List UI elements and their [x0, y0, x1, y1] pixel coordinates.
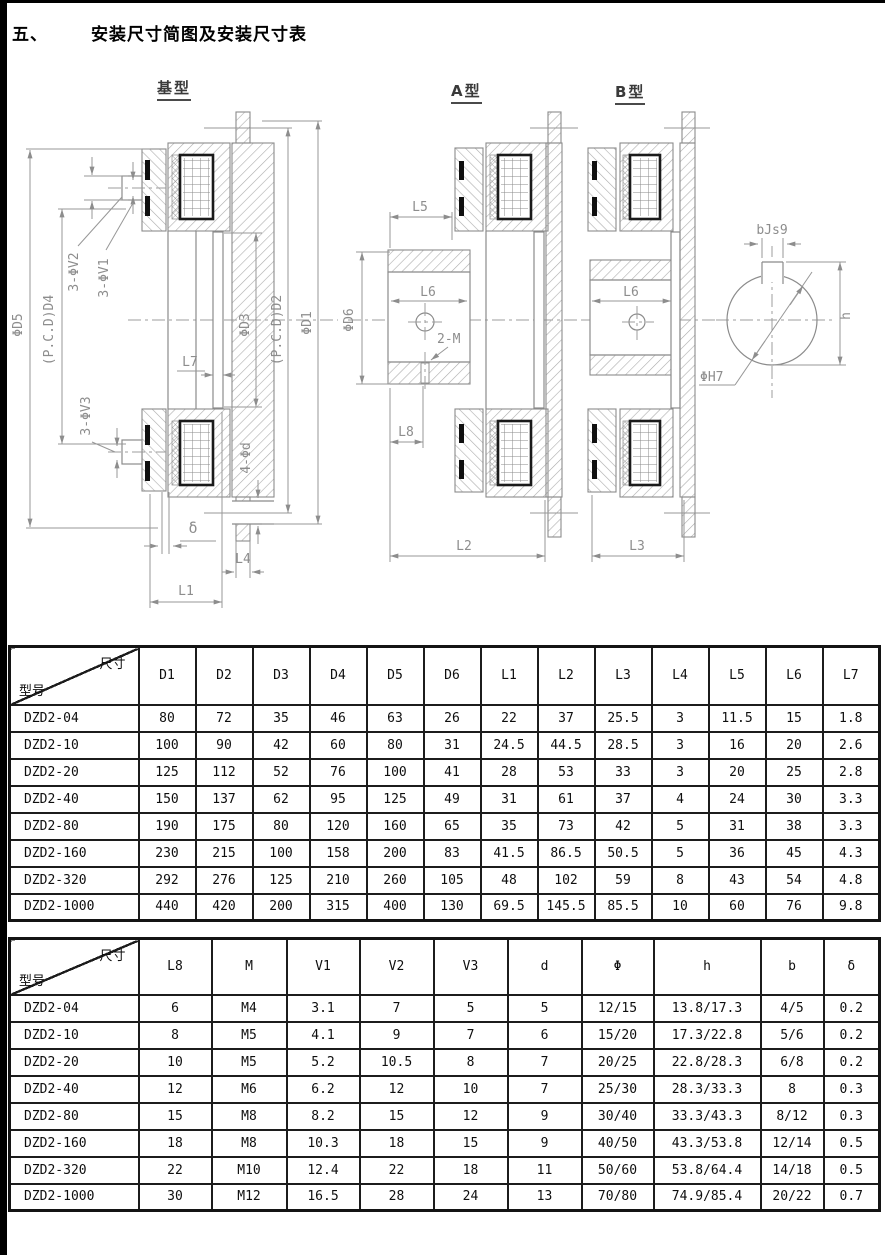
- value-cell: 49: [424, 786, 481, 813]
- value-cell: 12/15: [582, 995, 654, 1022]
- dim-label-l1: L1: [178, 584, 194, 599]
- value-cell: 63: [367, 705, 424, 732]
- model-cell: DZD2-04: [10, 705, 139, 732]
- table-row: DZD2-4012M66.21210725/3028.3/33.380.3: [10, 1076, 880, 1103]
- dim-label-2-m: 2-M: [437, 332, 461, 347]
- value-cell: 43: [709, 867, 766, 894]
- value-cell: 12.4: [287, 1157, 360, 1184]
- value-cell: 105: [424, 867, 481, 894]
- value-cell: 90: [196, 732, 253, 759]
- value-cell: 25/30: [582, 1076, 654, 1103]
- keyway-detail: bJs9 h ΦH7: [699, 223, 854, 398]
- value-cell: 4.8: [823, 867, 880, 894]
- value-cell: 62: [253, 786, 310, 813]
- column-header: L4: [652, 647, 709, 705]
- dim-label-l2: L2: [456, 539, 472, 554]
- value-cell: 100: [139, 732, 196, 759]
- value-cell: 292: [139, 867, 196, 894]
- value-cell: 37: [595, 786, 652, 813]
- table-row: DZD2-1602302151001582008341.586.550.5536…: [10, 840, 880, 867]
- dim-label-phi-d1: ΦD1: [300, 311, 315, 334]
- value-cell: 70/80: [582, 1184, 654, 1211]
- dim-label-pcd-d2: (P.C.D)D2: [270, 295, 285, 365]
- value-cell: 76: [766, 894, 823, 921]
- value-cell: 53: [538, 759, 595, 786]
- header-row: 尺寸 型号 L8 M V1 V2 V3 d Φ h b δ: [10, 939, 880, 995]
- value-cell: 45: [766, 840, 823, 867]
- value-cell: 26: [424, 705, 481, 732]
- dimension-table-1: 尺寸 型号 D1 D2 D3 D4 D5 D6 L1 L2 L3 L4 L5 L…: [8, 645, 881, 922]
- dim-label-l6-b: L6: [623, 285, 639, 300]
- value-cell: 37: [538, 705, 595, 732]
- value-cell: 125: [367, 786, 424, 813]
- value-cell: 41.5: [481, 840, 538, 867]
- model-cell: DZD2-20: [10, 1049, 139, 1076]
- dim-label-l6-a: L6: [420, 285, 436, 300]
- value-cell: 16.5: [287, 1184, 360, 1211]
- value-cell: 18: [139, 1130, 212, 1157]
- value-cell: 145.5: [538, 894, 595, 921]
- value-cell: 54: [766, 867, 823, 894]
- value-cell: 16: [709, 732, 766, 759]
- table-row: DZD2-04807235466326223725.5311.5151.8: [10, 705, 880, 732]
- corner-cell: 尺寸 型号: [10, 939, 139, 995]
- catalog-page: 五、安装尺寸简图及安装尺寸表 基型 A型 B型: [0, 0, 885, 1255]
- value-cell: 30/40: [582, 1103, 654, 1130]
- value-cell: 7: [360, 995, 434, 1022]
- value-cell: 83: [424, 840, 481, 867]
- value-cell: M4: [212, 995, 287, 1022]
- value-cell: 6.2: [287, 1076, 360, 1103]
- value-cell: 125: [253, 867, 310, 894]
- column-header: V2: [360, 939, 434, 995]
- value-cell: 5: [434, 995, 508, 1022]
- value-cell: 15/20: [582, 1022, 654, 1049]
- value-cell: 0.3: [824, 1076, 880, 1103]
- value-cell: 50/60: [582, 1157, 654, 1184]
- value-cell: 1.8: [823, 705, 880, 732]
- value-cell: 7: [508, 1076, 582, 1103]
- value-cell: 30: [766, 786, 823, 813]
- value-cell: 53.8/64.4: [654, 1157, 761, 1184]
- value-cell: 3: [652, 705, 709, 732]
- column-header: D2: [196, 647, 253, 705]
- corner-top-label: 尺寸: [99, 945, 125, 964]
- value-cell: 15: [360, 1103, 434, 1130]
- value-cell: 210: [310, 867, 367, 894]
- model-cell: DZD2-10: [10, 1022, 139, 1049]
- dim-label-phi-d5: ΦD5: [11, 313, 26, 336]
- value-cell: M10: [212, 1157, 287, 1184]
- value-cell: 15: [139, 1103, 212, 1130]
- value-cell: 30: [139, 1184, 212, 1211]
- value-cell: 125: [139, 759, 196, 786]
- dim-label-3-phi-v1: 3-ΦV1: [97, 258, 112, 297]
- value-cell: 8/12: [761, 1103, 824, 1130]
- dimension-table-2: 尺寸 型号 L8 M V1 V2 V3 d Φ h b δ DZD2-046M4…: [8, 937, 881, 1212]
- column-header: Φ: [582, 939, 654, 995]
- value-cell: 12: [139, 1076, 212, 1103]
- column-header: b: [761, 939, 824, 995]
- column-header: h: [654, 939, 761, 995]
- column-header: D3: [253, 647, 310, 705]
- value-cell: 80: [139, 705, 196, 732]
- value-cell: 74.9/85.4: [654, 1184, 761, 1211]
- value-cell: 38: [766, 813, 823, 840]
- table-row: DZD2-32022M1012.422181150/6053.8/64.414/…: [10, 1157, 880, 1184]
- value-cell: 20/22: [761, 1184, 824, 1211]
- column-header: L2: [538, 647, 595, 705]
- value-cell: 4.3: [823, 840, 880, 867]
- dim-label-3-phi-v2: 3-ΦV2: [67, 252, 82, 291]
- model-cell: DZD2-160: [10, 1130, 139, 1157]
- value-cell: 28.5: [595, 732, 652, 759]
- value-cell: 9: [508, 1130, 582, 1157]
- dim-label-l3: L3: [629, 539, 645, 554]
- value-cell: 8: [139, 1022, 212, 1049]
- value-cell: 15: [766, 705, 823, 732]
- value-cell: 4.1: [287, 1022, 360, 1049]
- value-cell: 2.8: [823, 759, 880, 786]
- value-cell: 3: [652, 759, 709, 786]
- value-cell: 0.7: [824, 1184, 880, 1211]
- value-cell: 6: [508, 1022, 582, 1049]
- friction-disc: [213, 232, 223, 408]
- column-header: D1: [139, 647, 196, 705]
- dim-label-h: h: [839, 312, 854, 320]
- value-cell: 28: [360, 1184, 434, 1211]
- value-cell: 13: [508, 1184, 582, 1211]
- table-row: DZD2-10100904260803124.544.528.5316202.6: [10, 732, 880, 759]
- value-cell: 0.2: [824, 1049, 880, 1076]
- table-row: DZD2-8015M88.21512930/4033.3/43.38/120.3: [10, 1103, 880, 1130]
- value-cell: M5: [212, 1049, 287, 1076]
- technical-drawing: ΦD5 (P.C.D)D4 3-ΦV2 3-ΦV1 3-ΦV3 ΦD3: [0, 0, 885, 640]
- value-cell: 3: [652, 732, 709, 759]
- value-cell: 10.5: [360, 1049, 434, 1076]
- value-cell: 102: [538, 867, 595, 894]
- value-cell: 25.5: [595, 705, 652, 732]
- value-cell: 12: [360, 1076, 434, 1103]
- model-cell: DZD2-40: [10, 1076, 139, 1103]
- table-row: DZD2-100044042020031540013069.5145.585.5…: [10, 894, 880, 921]
- value-cell: 18: [434, 1157, 508, 1184]
- column-header: L1: [481, 647, 538, 705]
- value-cell: 5: [652, 840, 709, 867]
- value-cell: 8.2: [287, 1103, 360, 1130]
- dim-label-4-phi-d: 4-Φd: [239, 442, 254, 473]
- value-cell: 80: [367, 732, 424, 759]
- value-cell: 400: [367, 894, 424, 921]
- value-cell: 5/6: [761, 1022, 824, 1049]
- value-cell: 22: [360, 1157, 434, 1184]
- model-cell: DZD2-40: [10, 786, 139, 813]
- value-cell: 8: [652, 867, 709, 894]
- value-cell: 200: [253, 894, 310, 921]
- model-cell: DZD2-10: [10, 732, 139, 759]
- value-cell: 40/50: [582, 1130, 654, 1157]
- value-cell: 4: [652, 786, 709, 813]
- value-cell: 3.1: [287, 995, 360, 1022]
- table-row: DZD2-108M54.197615/2017.3/22.85/60.2: [10, 1022, 880, 1049]
- value-cell: 230: [139, 840, 196, 867]
- value-cell: 130: [424, 894, 481, 921]
- value-cell: 8: [761, 1076, 824, 1103]
- dim-label-l4: L4: [235, 552, 251, 567]
- value-cell: 31: [709, 813, 766, 840]
- value-cell: 3.3: [823, 813, 880, 840]
- value-cell: 33.3/43.3: [654, 1103, 761, 1130]
- value-cell: 20: [709, 759, 766, 786]
- column-header: D5: [367, 647, 424, 705]
- value-cell: 100: [367, 759, 424, 786]
- value-cell: 46: [310, 705, 367, 732]
- value-cell: 13.8/17.3: [654, 995, 761, 1022]
- column-header: L5: [709, 647, 766, 705]
- value-cell: 9.8: [823, 894, 880, 921]
- value-cell: 7: [434, 1022, 508, 1049]
- value-cell: 0.3: [824, 1103, 880, 1130]
- value-cell: 69.5: [481, 894, 538, 921]
- value-cell: 10.3: [287, 1130, 360, 1157]
- value-cell: 2.6: [823, 732, 880, 759]
- value-cell: 276: [196, 867, 253, 894]
- value-cell: 10: [139, 1049, 212, 1076]
- value-cell: 5: [508, 995, 582, 1022]
- value-cell: 60: [310, 732, 367, 759]
- dim-label-3-phi-v3: 3-ΦV3: [79, 396, 94, 435]
- value-cell: 33: [595, 759, 652, 786]
- value-cell: 3.3: [823, 786, 880, 813]
- value-cell: 22.8/28.3: [654, 1049, 761, 1076]
- value-cell: 73: [538, 813, 595, 840]
- value-cell: 112: [196, 759, 253, 786]
- corner-top-label: 尺寸: [99, 653, 125, 672]
- value-cell: 35: [481, 813, 538, 840]
- value-cell: 10: [652, 894, 709, 921]
- model-cell: DZD2-80: [10, 1103, 139, 1130]
- value-cell: 20/25: [582, 1049, 654, 1076]
- value-cell: 420: [196, 894, 253, 921]
- value-cell: 150: [139, 786, 196, 813]
- value-cell: 31: [481, 786, 538, 813]
- table-row: DZD2-801901758012016065357342531383.3: [10, 813, 880, 840]
- value-cell: 175: [196, 813, 253, 840]
- model-cell: DZD2-320: [10, 1157, 139, 1184]
- dim-label-l8: L8: [398, 425, 414, 440]
- value-cell: 31: [424, 732, 481, 759]
- value-cell: 72: [196, 705, 253, 732]
- value-cell: 18: [360, 1130, 434, 1157]
- dim-label-pcd-d4: (P.C.D)D4: [42, 295, 57, 366]
- value-cell: 42: [253, 732, 310, 759]
- value-cell: 20: [766, 732, 823, 759]
- column-header: D6: [424, 647, 481, 705]
- value-cell: 5.2: [287, 1049, 360, 1076]
- value-cell: 137: [196, 786, 253, 813]
- table-row: DZD2-40150137629512549316137424303.3: [10, 786, 880, 813]
- dim-label-phi-h7: ΦH7: [700, 370, 723, 385]
- value-cell: 24: [709, 786, 766, 813]
- value-cell: 0.2: [824, 995, 880, 1022]
- value-cell: 86.5: [538, 840, 595, 867]
- value-cell: 158: [310, 840, 367, 867]
- value-cell: 6/8: [761, 1049, 824, 1076]
- model-cell: DZD2-320: [10, 867, 139, 894]
- value-cell: 61: [538, 786, 595, 813]
- table-row: DZD2-046M43.175512/1513.8/17.34/50.2: [10, 995, 880, 1022]
- value-cell: 36: [709, 840, 766, 867]
- value-cell: 260: [367, 867, 424, 894]
- value-cell: 25: [766, 759, 823, 786]
- table-row: DZD2-20125112527610041285333320252.8: [10, 759, 880, 786]
- value-cell: 60: [709, 894, 766, 921]
- model-cell: DZD2-04: [10, 995, 139, 1022]
- value-cell: M6: [212, 1076, 287, 1103]
- value-cell: 120: [310, 813, 367, 840]
- value-cell: 24: [434, 1184, 508, 1211]
- value-cell: 9: [508, 1103, 582, 1130]
- value-cell: 24.5: [481, 732, 538, 759]
- dim-label-phi-d3: ΦD3: [238, 313, 253, 336]
- value-cell: 44.5: [538, 732, 595, 759]
- dim-label-bjs9: bJs9: [756, 223, 787, 238]
- value-cell: 7: [508, 1049, 582, 1076]
- value-cell: 8: [434, 1049, 508, 1076]
- table-row: DZD2-2010M55.210.58720/2522.8/28.36/80.2: [10, 1049, 880, 1076]
- value-cell: 160: [367, 813, 424, 840]
- table-row: DZD2-16018M810.31815940/5043.3/53.812/14…: [10, 1130, 880, 1157]
- type-b-drawing: L6 L3: [582, 112, 716, 562]
- value-cell: 440: [139, 894, 196, 921]
- value-cell: 100: [253, 840, 310, 867]
- table-row: DZD2-100030M1216.528241370/8074.9/85.420…: [10, 1184, 880, 1211]
- value-cell: 76: [310, 759, 367, 786]
- corner-cell: 尺寸 型号: [10, 647, 139, 705]
- value-cell: 11: [508, 1157, 582, 1184]
- value-cell: 17.3/22.8: [654, 1022, 761, 1049]
- value-cell: 41: [424, 759, 481, 786]
- column-header: V3: [434, 939, 508, 995]
- column-header: L8: [139, 939, 212, 995]
- value-cell: 48: [481, 867, 538, 894]
- value-cell: 200: [367, 840, 424, 867]
- model-cell: DZD2-160: [10, 840, 139, 867]
- column-header: D4: [310, 647, 367, 705]
- value-cell: 80: [253, 813, 310, 840]
- value-cell: M8: [212, 1103, 287, 1130]
- column-header: M: [212, 939, 287, 995]
- value-cell: 215: [196, 840, 253, 867]
- value-cell: 52: [253, 759, 310, 786]
- value-cell: 9: [360, 1022, 434, 1049]
- column-header: L3: [595, 647, 652, 705]
- value-cell: 15: [434, 1130, 508, 1157]
- corner-bottom-label: 型号: [19, 970, 45, 989]
- value-cell: 4/5: [761, 995, 824, 1022]
- value-cell: 65: [424, 813, 481, 840]
- column-header: δ: [824, 939, 880, 995]
- value-cell: 0.5: [824, 1157, 880, 1184]
- dim-label-l7: L7: [182, 355, 198, 370]
- value-cell: 22: [139, 1157, 212, 1184]
- value-cell: 43.3/53.8: [654, 1130, 761, 1157]
- table-row: DZD2-3202922761252102601054810259843544.…: [10, 867, 880, 894]
- dim-label-l5: L5: [412, 200, 428, 215]
- column-header: d: [508, 939, 582, 995]
- value-cell: 315: [310, 894, 367, 921]
- value-cell: 59: [595, 867, 652, 894]
- model-cell: DZD2-1000: [10, 894, 139, 921]
- value-cell: 85.5: [595, 894, 652, 921]
- value-cell: 35: [253, 705, 310, 732]
- value-cell: M5: [212, 1022, 287, 1049]
- base-drawing: ΦD5 (P.C.D)D4 3-ΦV2 3-ΦV1 3-ΦV3 ΦD3: [11, 112, 338, 608]
- value-cell: 0.2: [824, 1022, 880, 1049]
- model-cell: DZD2-20: [10, 759, 139, 786]
- value-cell: 190: [139, 813, 196, 840]
- value-cell: 10: [434, 1076, 508, 1103]
- value-cell: 5: [652, 813, 709, 840]
- value-cell: 28: [481, 759, 538, 786]
- value-cell: 22: [481, 705, 538, 732]
- value-cell: 28.3/33.3: [654, 1076, 761, 1103]
- value-cell: 14/18: [761, 1157, 824, 1184]
- value-cell: 12/14: [761, 1130, 824, 1157]
- column-header: V1: [287, 939, 360, 995]
- model-cell: DZD2-1000: [10, 1184, 139, 1211]
- value-cell: 11.5: [709, 705, 766, 732]
- value-cell: 95: [310, 786, 367, 813]
- value-cell: 12: [434, 1103, 508, 1130]
- value-cell: M12: [212, 1184, 287, 1211]
- model-cell: DZD2-80: [10, 813, 139, 840]
- header-row: 尺寸 型号 D1 D2 D3 D4 D5 D6 L1 L2 L3 L4 L5 L…: [10, 647, 880, 705]
- value-cell: 50.5: [595, 840, 652, 867]
- corner-bottom-label: 型号: [19, 680, 45, 699]
- value-cell: 42: [595, 813, 652, 840]
- column-header: L6: [766, 647, 823, 705]
- column-header: L7: [823, 647, 880, 705]
- value-cell: 0.5: [824, 1130, 880, 1157]
- value-cell: 6: [139, 995, 212, 1022]
- dim-label-phi-d6: ΦD6: [342, 308, 357, 331]
- value-cell: M8: [212, 1130, 287, 1157]
- dim-label-delta: δ: [188, 519, 197, 537]
